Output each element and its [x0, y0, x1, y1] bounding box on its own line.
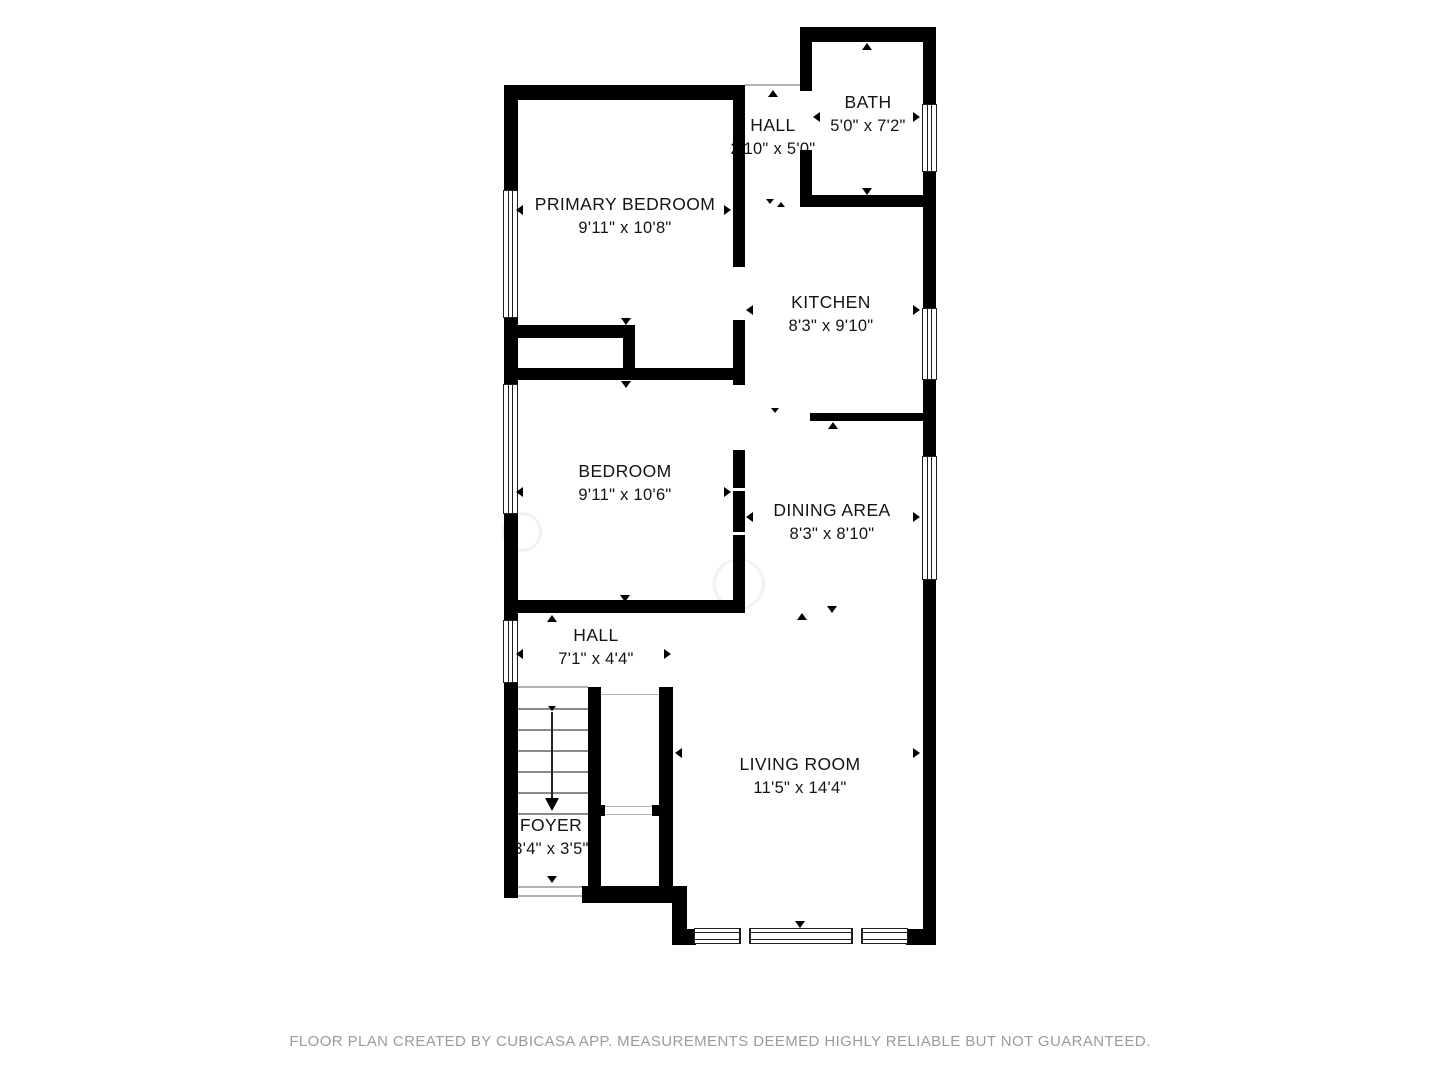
room-label-primary-bedroom: PRIMARY BEDROOM 9'11" x 10'8": [535, 194, 715, 239]
wall: [923, 172, 936, 308]
measure-arrow-icon: [795, 921, 805, 928]
measure-arrow-icon: [827, 606, 837, 613]
wall: [733, 320, 745, 385]
measure-arrow-icon: [746, 305, 753, 315]
room-label-bath: BATH 5'0" x 7'2": [830, 92, 905, 137]
door-notch: [733, 532, 745, 535]
window-mullion: [739, 928, 751, 944]
room-name: BEDROOM: [578, 461, 671, 483]
wall: [923, 580, 936, 945]
threshold-line: [518, 686, 588, 688]
room-name: LIVING ROOM: [739, 754, 860, 776]
stair-tread: [518, 750, 588, 752]
measure-arrow-icon: [828, 422, 838, 429]
footer-disclaimer: FLOOR PLAN CREATED BY CUBICASA APP. MEAS…: [0, 1033, 1440, 1050]
room-dimensions: 8'3" x 8'10": [773, 524, 890, 545]
measure-arrow-icon: [675, 748, 682, 758]
room-label-hall-lower: HALL 7'1" x 4'4": [558, 625, 633, 670]
wall: [800, 27, 936, 42]
measure-arrow-icon: [516, 487, 523, 497]
room-dimensions: 5'0" x 7'2": [830, 116, 905, 137]
measure-arrow-icon: [913, 748, 920, 758]
room-dimensions: 11'5" x 14'4": [739, 778, 860, 799]
measure-arrow-icon: [738, 142, 745, 152]
wall: [652, 805, 673, 816]
room-dimensions: 9'11" x 10'8": [535, 218, 715, 239]
room-name: DINING AREA: [773, 500, 890, 522]
threshold-line: [601, 694, 659, 695]
measure-arrow-icon: [766, 199, 774, 204]
door-notch: [733, 488, 745, 491]
wall: [672, 929, 696, 945]
stair-direction-start-icon: [548, 706, 556, 711]
measure-arrow-icon: [621, 381, 631, 388]
measure-arrow-icon: [724, 487, 731, 497]
wall: [733, 85, 745, 267]
threshold-line: [601, 814, 659, 815]
entry-threshold-line: [518, 886, 582, 888]
room-dimensions: 7'1" x 4'4": [558, 649, 633, 670]
entry-arrow-icon: [547, 876, 557, 883]
threshold-line: [745, 84, 800, 86]
stair-direction-arrow-icon: [545, 798, 559, 811]
stair-tread: [518, 792, 588, 794]
measure-arrow-icon: [621, 318, 631, 325]
wall: [504, 325, 627, 338]
measure-arrow-icon: [862, 188, 872, 195]
measure-arrow-icon: [768, 90, 778, 97]
measure-arrow-icon: [797, 613, 807, 620]
measure-arrow-icon: [724, 205, 731, 215]
window: [922, 104, 937, 172]
room-label-living-room: LIVING ROOM 11'5" x 14'4": [739, 754, 860, 799]
room-label-kitchen: KITCHEN 8'3" x 9'10": [789, 292, 874, 337]
window: [694, 928, 908, 944]
window-mullion: [851, 928, 863, 944]
wall: [659, 687, 673, 888]
room-name: PRIMARY BEDROOM: [535, 194, 715, 216]
wall: [504, 683, 518, 885]
window: [922, 456, 937, 580]
room-dimensions: 8'3" x 9'10": [789, 316, 874, 337]
room-name: KITCHEN: [789, 292, 874, 314]
wall: [810, 413, 936, 421]
room-name: HALL: [558, 625, 633, 647]
measure-arrow-icon: [771, 408, 779, 413]
room-dimensions: 3'4" x 3'5": [513, 839, 588, 860]
wall: [504, 885, 518, 898]
wall: [504, 85, 518, 190]
measure-arrow-icon: [913, 305, 920, 315]
measure-arrow-icon: [516, 649, 523, 659]
stair-tread: [518, 729, 588, 731]
room-name: FOYER: [513, 815, 588, 837]
wall: [588, 805, 605, 816]
window: [922, 308, 937, 380]
measure-arrow-icon: [547, 615, 557, 622]
wall: [800, 27, 812, 91]
wall: [906, 929, 936, 945]
floor-plan: PRIMARY BEDROOM 9'11" x 10'8" HALL 2'10"…: [0, 0, 1440, 1080]
wall: [504, 368, 745, 380]
measure-arrow-icon: [620, 595, 630, 602]
measure-arrow-icon: [746, 512, 753, 522]
stair-tread: [518, 771, 588, 773]
measure-arrow-icon: [813, 112, 820, 122]
room-name: BATH: [830, 92, 905, 114]
wall: [588, 687, 601, 888]
measure-arrow-icon: [913, 512, 920, 522]
measure-arrow-icon: [913, 112, 920, 122]
room-label-dining-area: DINING AREA 8'3" x 8'10": [773, 500, 890, 545]
measure-arrow-icon: [664, 649, 671, 659]
measure-arrow-icon: [621, 93, 631, 100]
room-label-bedroom: BEDROOM 9'11" x 10'6": [578, 461, 671, 506]
measure-arrow-icon: [862, 43, 872, 50]
measure-arrow-icon: [516, 205, 523, 215]
measure-arrow-icon: [777, 202, 785, 207]
threshold-line: [601, 806, 659, 807]
room-dimensions: 9'11" x 10'6": [578, 485, 671, 506]
stair-direction-line: [551, 712, 553, 800]
wall: [923, 27, 936, 104]
wall: [800, 195, 923, 207]
room-label-foyer: FOYER 3'4" x 3'5": [513, 815, 588, 860]
entry-threshold-line: [518, 895, 582, 897]
